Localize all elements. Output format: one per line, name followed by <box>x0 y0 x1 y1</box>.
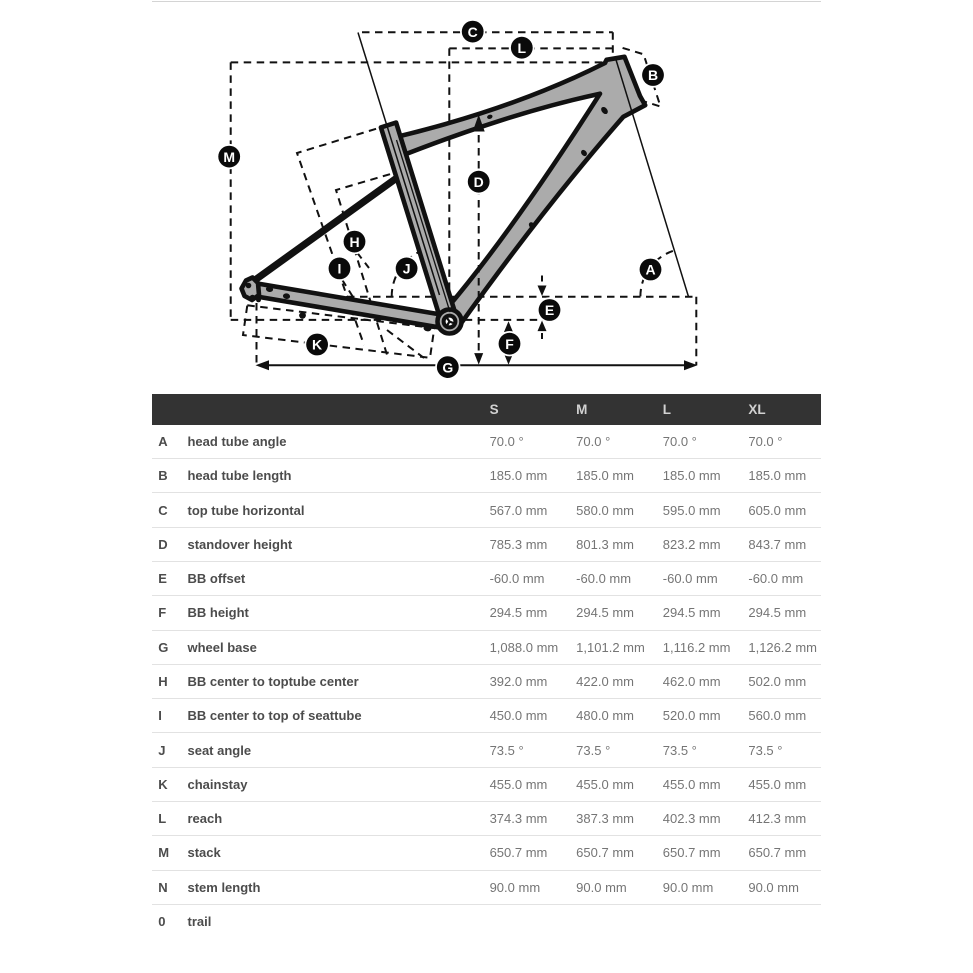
svg-text:C: C <box>468 24 478 40</box>
svg-text:D: D <box>474 174 484 190</box>
svg-text:L: L <box>518 40 527 56</box>
svg-text:H: H <box>349 234 359 250</box>
svg-text:A: A <box>645 262 655 278</box>
svg-text:J: J <box>403 261 411 277</box>
svg-text:I: I <box>338 261 342 277</box>
svg-text:B: B <box>648 67 658 83</box>
svg-text:K: K <box>312 337 322 353</box>
svg-text:E: E <box>545 302 554 318</box>
svg-text:G: G <box>442 359 453 375</box>
svg-text:M: M <box>223 149 235 165</box>
svg-text:F: F <box>505 336 514 352</box>
